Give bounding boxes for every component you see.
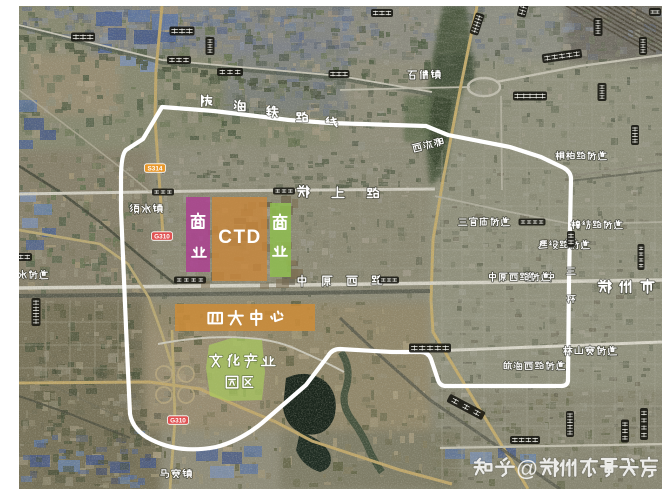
svg-text:G310: G310 [154, 233, 170, 240]
svg-text:G310: G310 [170, 417, 186, 424]
svg-text:@: @ [516, 456, 538, 481]
svg-text:CTD: CTD [218, 227, 262, 248]
svg-text:S314: S314 [148, 165, 163, 172]
